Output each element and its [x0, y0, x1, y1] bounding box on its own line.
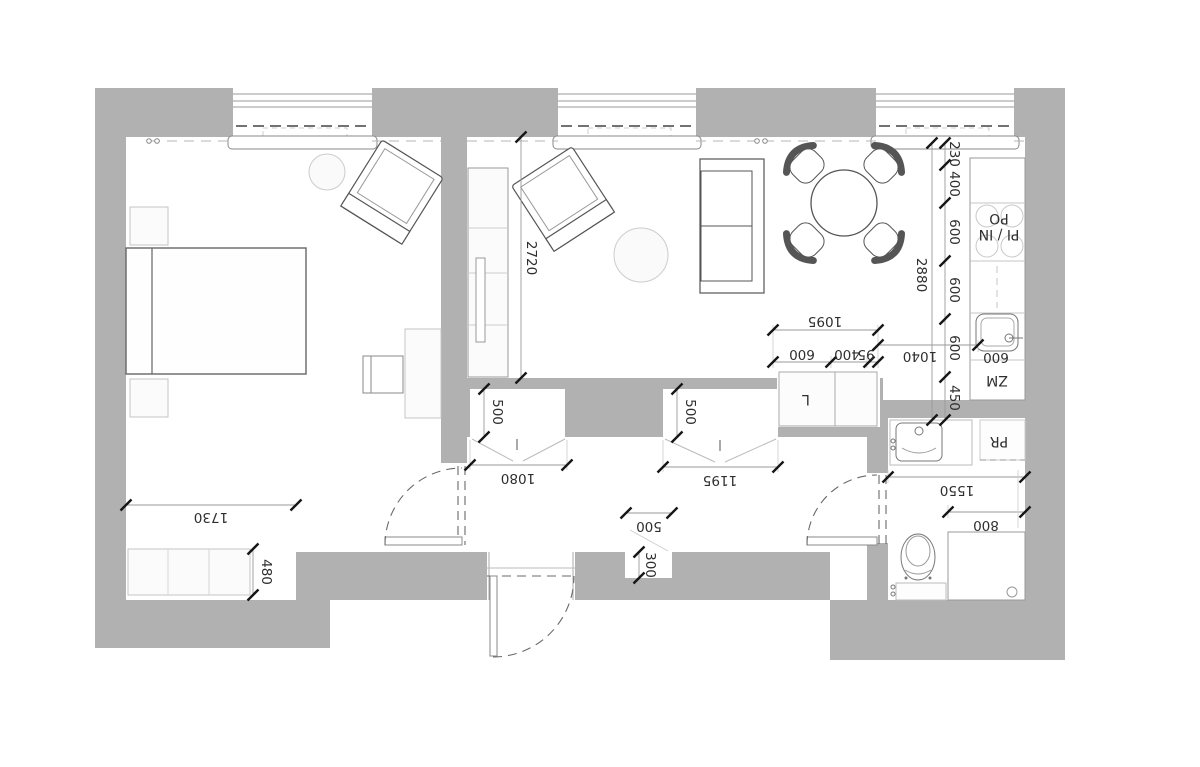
armchair-bedroom: [341, 140, 443, 244]
door-bathroom: [807, 475, 886, 545]
dim-run-total: 1095: [808, 313, 842, 329]
desk-chair: [363, 356, 403, 393]
window-sill: [228, 136, 377, 149]
pouf-living: [614, 228, 668, 282]
desk: [405, 329, 441, 418]
dim-living-width: 2720: [523, 241, 539, 275]
bathroom-sink: [890, 420, 972, 465]
wardrobe: [468, 168, 508, 377]
faucet-icon: [915, 427, 923, 435]
wall-right: [1025, 88, 1065, 660]
dim-kitchen-chain-5: 450: [946, 385, 962, 411]
window-opening-3: [876, 88, 1014, 137]
washer-label: PR: [990, 433, 1008, 449]
dim-run-chain-1: 400: [834, 346, 860, 362]
door-entrance: [487, 552, 575, 657]
floor-plan-page: PO PI / IN 600 ZM L PR: [0, 0, 1200, 767]
shower-drain-icon: [1007, 587, 1017, 597]
bed: [126, 248, 306, 374]
toilet: [891, 534, 946, 600]
armchair-living: [512, 147, 615, 252]
nightstand-top: [130, 207, 168, 245]
dim-shower-width: 800: [973, 517, 999, 533]
wall-bedroom-bottom: [95, 600, 330, 648]
wall-left: [95, 88, 126, 648]
wardrobe-handle: [476, 258, 485, 342]
dim-kitchen-chain-2: 600: [946, 219, 962, 245]
wall-bathroom-left-lower: [867, 543, 888, 600]
dim-entry-niche-width: 500: [636, 518, 662, 534]
dining-table: [811, 170, 877, 236]
dim-niche2-width: 1195: [703, 472, 737, 488]
fridge-label: L: [802, 391, 810, 407]
dim-niche2-depth: 500: [682, 399, 698, 425]
dim-niche1-width: 1080: [501, 470, 535, 486]
dim-kitchen-chain-3: 600: [946, 277, 962, 303]
dim-niche1-depth: 500: [489, 399, 505, 425]
dresser: [128, 549, 250, 595]
dim-run-chain-2: 95: [857, 346, 874, 362]
dim-kitchen-total: 2880: [913, 258, 929, 292]
nightstand-bottom: [130, 379, 168, 417]
window-opening-2: [558, 88, 696, 137]
dim-kitchen-chain-1: 400: [946, 171, 962, 197]
dim-fridge-width: 1040: [903, 348, 937, 364]
niche1-closet-symbol: [472, 439, 565, 461]
connector-symbol-living: [755, 139, 768, 144]
sink-width-dim: 600: [983, 349, 1009, 365]
dim-kitchen-chain-4: 600: [946, 335, 962, 361]
shower: [948, 532, 1025, 600]
entry-opening: [487, 552, 575, 600]
dim-run-chain-0: 600: [789, 346, 815, 362]
fridge: [779, 372, 877, 426]
dim-kitchen-chain-0: 230: [946, 141, 962, 167]
sofa: [700, 159, 764, 293]
dim-bath-width: 1550: [940, 482, 974, 498]
door-bedroom: [385, 466, 465, 545]
window-sill: [553, 136, 701, 149]
window-opening-1: [233, 88, 372, 137]
wall-bathroom-bottom: [830, 600, 1065, 660]
niche2-closet-symbol: [665, 439, 776, 462]
hob-label: PI / IN: [979, 226, 1020, 242]
dim-entry-niche-depth: 300: [642, 552, 658, 578]
pouf-bedroom: [309, 154, 345, 190]
kitchen-sink: [976, 314, 1023, 351]
wardrobe-niche-2: [663, 389, 778, 437]
dim-dresser-width: 1730: [194, 509, 228, 525]
dim-dresser-depth: 480: [258, 559, 274, 585]
dishwasher-label: ZM: [986, 372, 1008, 388]
floor-plan-drawing: PO PI / IN 600 ZM L PR: [0, 0, 1200, 767]
oven-label: PO: [989, 210, 1008, 226]
